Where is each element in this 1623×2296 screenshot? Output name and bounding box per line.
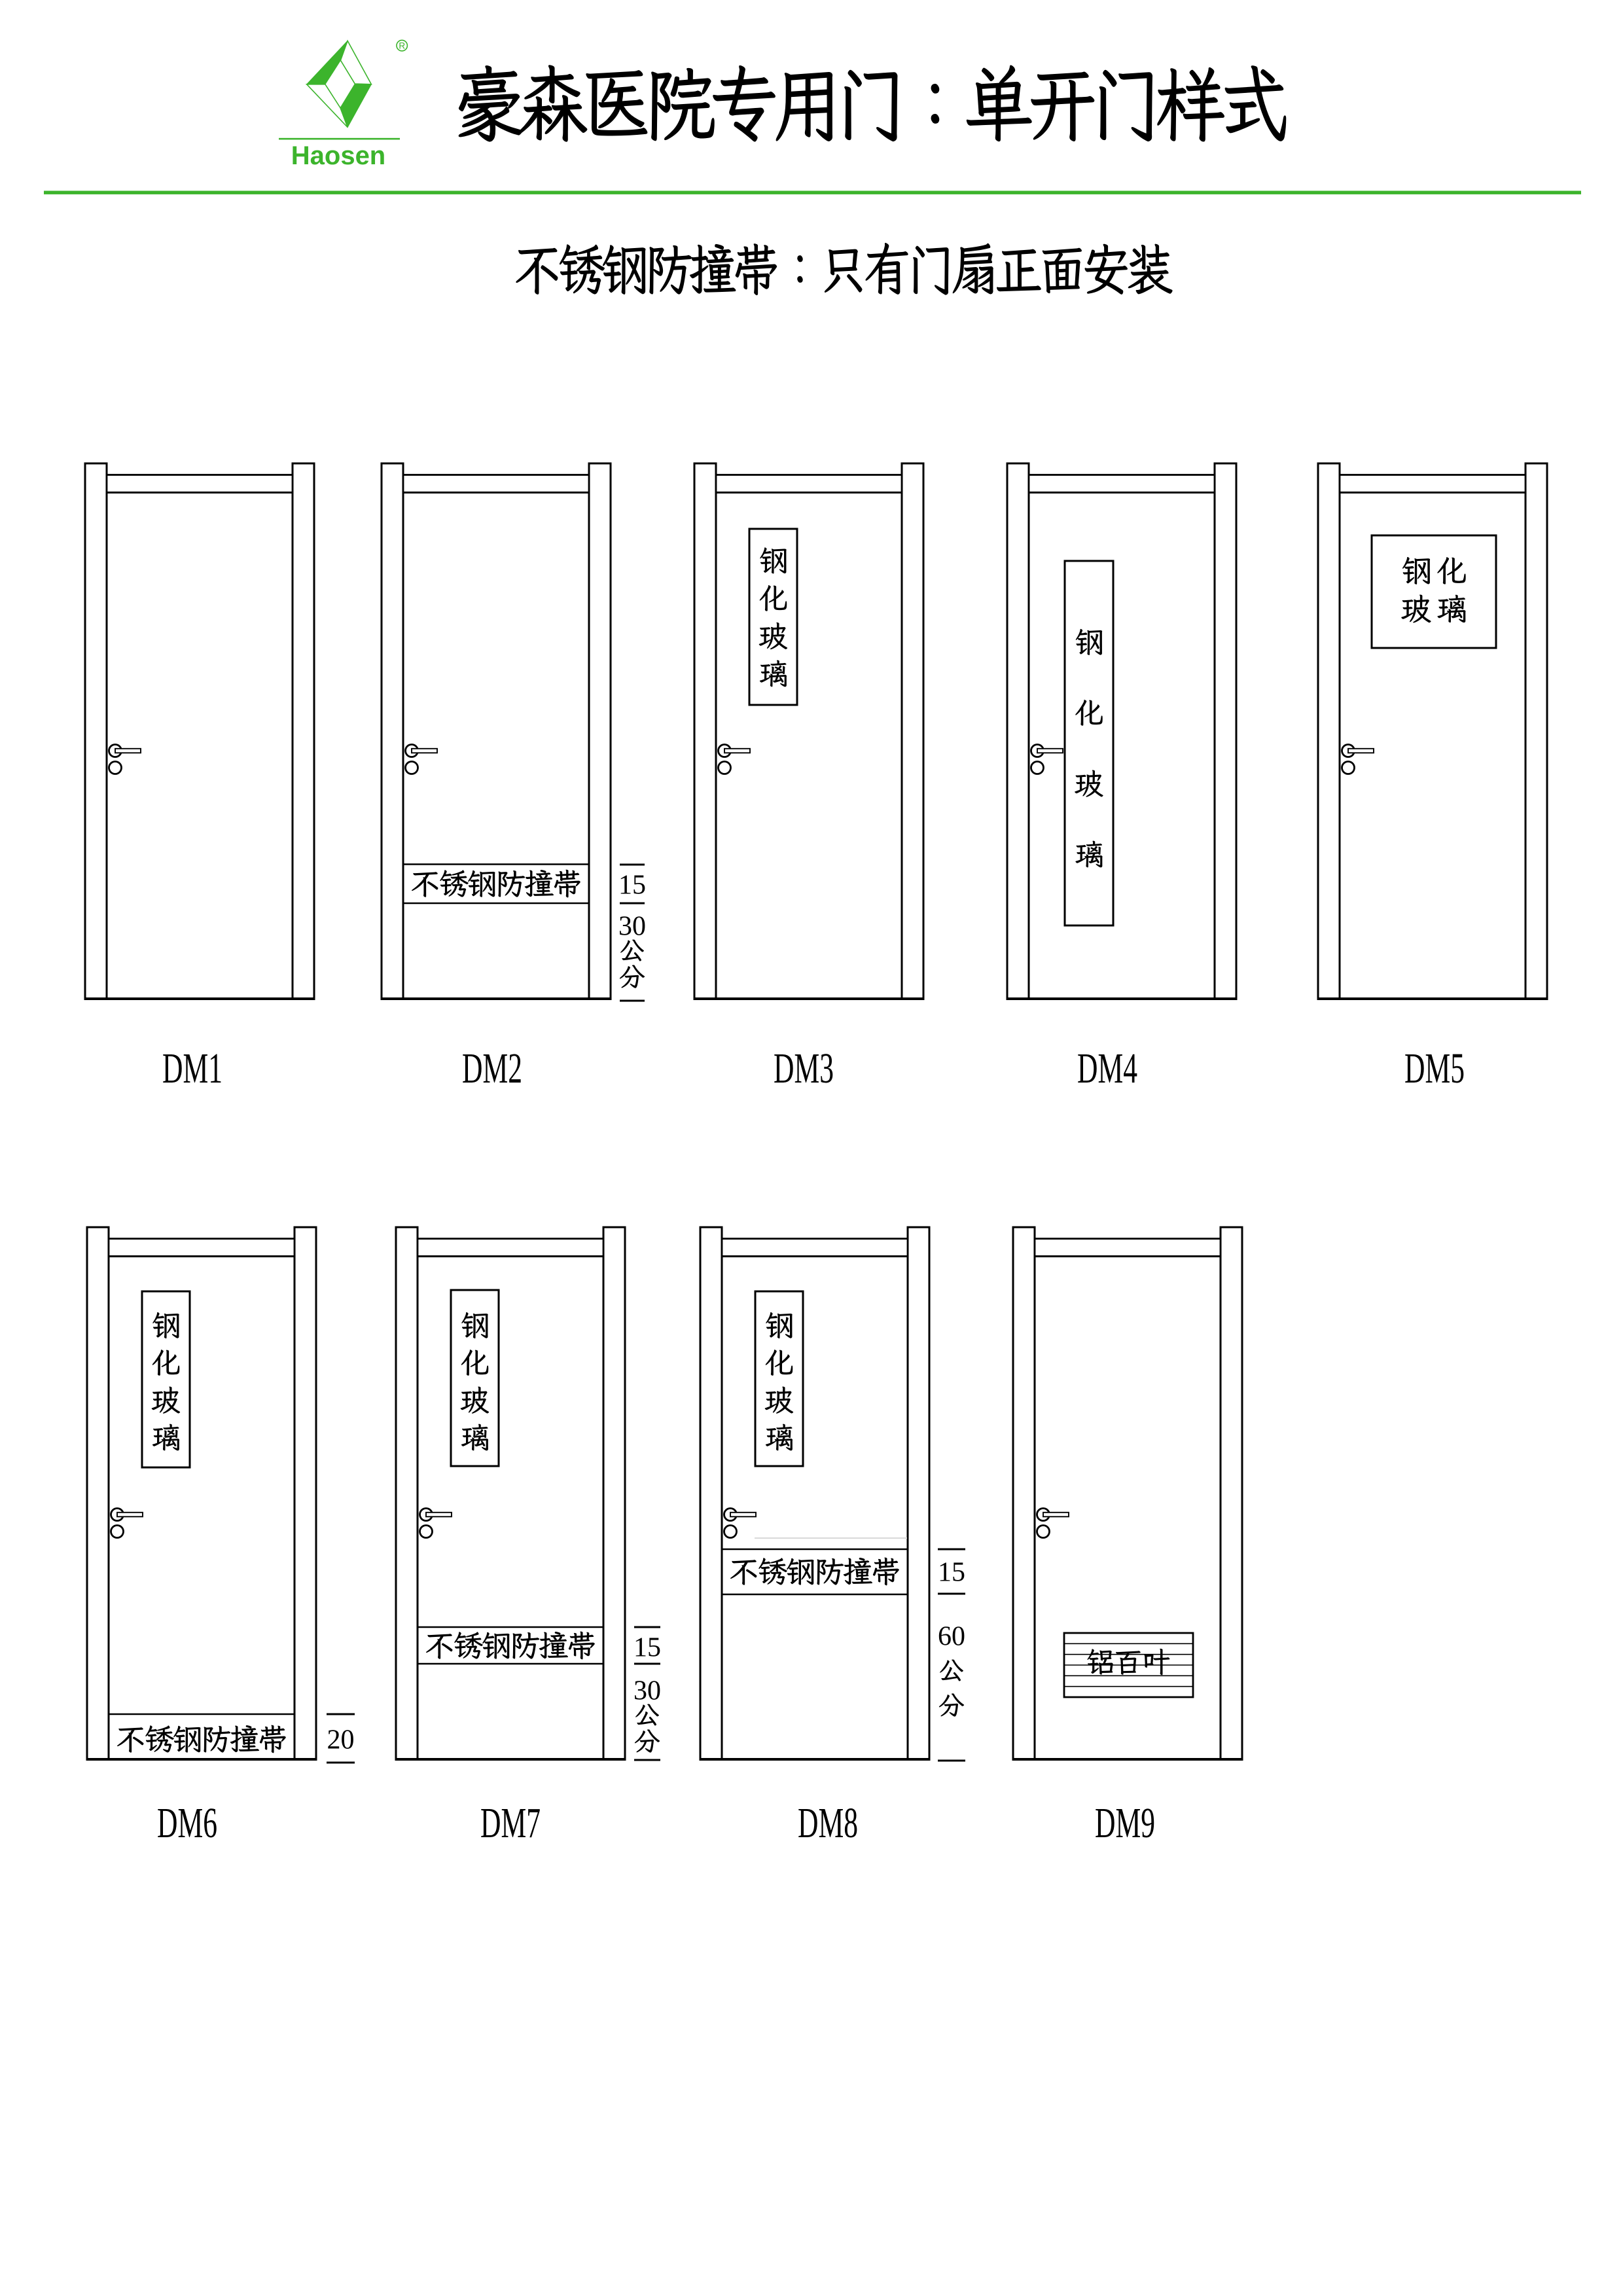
svg-text:DM8: DM8 — [798, 1799, 858, 1847]
svg-text:15: 15 — [618, 870, 646, 901]
svg-text:DM3: DM3 — [774, 1045, 834, 1092]
svg-text:60: 60 — [938, 1622, 965, 1652]
svg-text:DM6: DM6 — [157, 1799, 217, 1847]
svg-text:20: 20 — [327, 1725, 355, 1755]
svg-text:DM7: DM7 — [480, 1799, 541, 1847]
svg-text:15: 15 — [633, 1633, 661, 1663]
svg-text:Haosen: Haosen — [291, 141, 386, 170]
svg-text:DM9: DM9 — [1095, 1799, 1155, 1847]
svg-text:DM4: DM4 — [1077, 1045, 1137, 1092]
svg-text:15: 15 — [938, 1558, 965, 1588]
svg-text:DM1: DM1 — [162, 1045, 223, 1092]
svg-text:DM2: DM2 — [462, 1045, 522, 1092]
svg-text:DM5: DM5 — [1404, 1045, 1465, 1092]
svg-text:30: 30 — [633, 1676, 661, 1706]
svg-text:R: R — [399, 41, 405, 51]
svg-text:30: 30 — [618, 912, 646, 942]
